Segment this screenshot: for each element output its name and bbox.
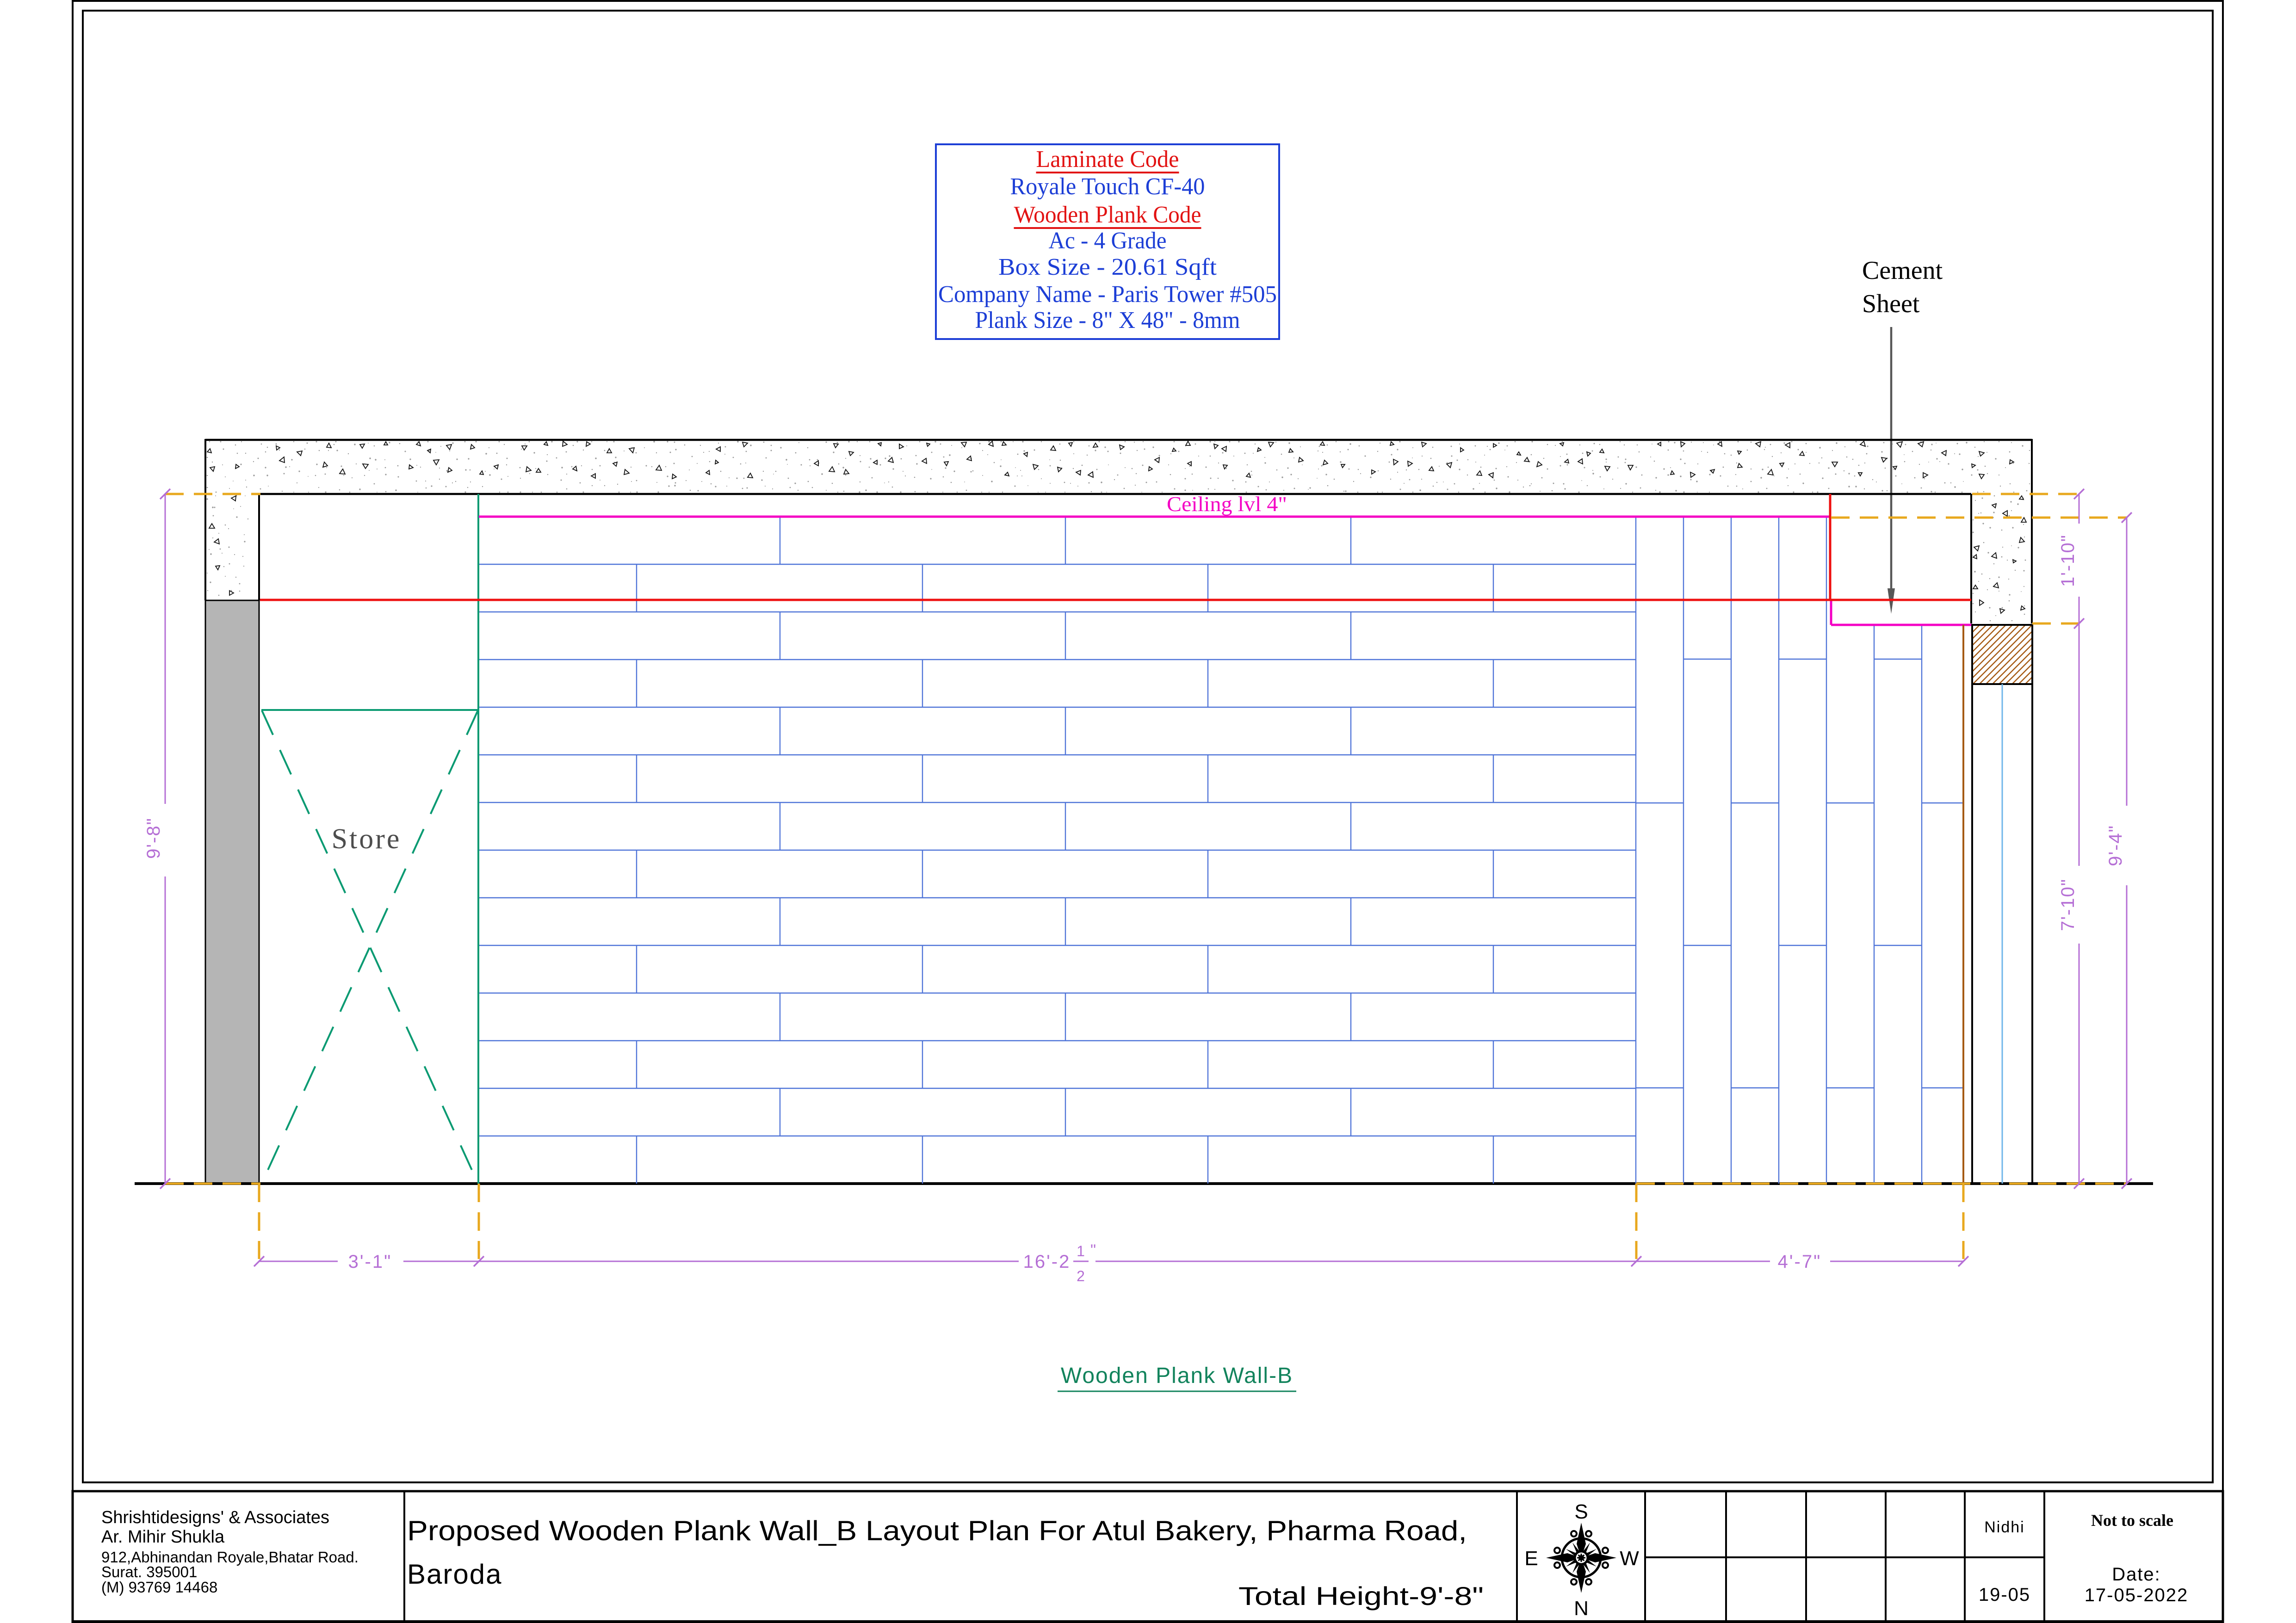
svg-text:Wooden Plank Code: Wooden Plank Code <box>1014 202 1201 228</box>
svg-text:1'-10": 1'-10" <box>2058 534 2078 587</box>
svg-text:N: N <box>1574 1597 1589 1620</box>
svg-text:Wooden Plank Wall-B: Wooden Plank Wall-B <box>1061 1364 1293 1388</box>
svg-text:7'-10": 7'-10" <box>2058 878 2078 931</box>
svg-text:Box Size - 20.61 Sqft: Box Size - 20.61 Sqft <box>998 254 1217 280</box>
svg-text:19-05: 19-05 <box>1979 1585 2030 1605</box>
svg-text:S: S <box>1574 1500 1588 1523</box>
svg-text:Store: Store <box>332 823 402 855</box>
svg-text:Ar. Mihir Shukla: Ar. Mihir Shukla <box>101 1527 225 1547</box>
svg-text:(M) 93769 14468: (M) 93769 14468 <box>101 1579 217 1596</box>
svg-text:16'-2: 16'-2 <box>1023 1252 1071 1272</box>
svg-text:9'-8": 9'-8" <box>143 817 164 859</box>
svg-text:Company Name - Paris Tower #50: Company Name - Paris Tower #505 <box>938 281 1277 308</box>
svg-text:Laminate Code: Laminate Code <box>1036 146 1179 173</box>
svg-text:Nidhi: Nidhi <box>1984 1518 2024 1536</box>
svg-text:Proposed Wooden Plank Wall_B L: Proposed Wooden Plank Wall_B Layout Plan… <box>407 1515 1467 1546</box>
svg-text:E: E <box>1524 1547 1538 1570</box>
svg-text:Date:: Date: <box>2112 1564 2161 1585</box>
svg-text:Cement: Cement <box>1862 256 1943 285</box>
svg-text:4'-7": 4'-7" <box>1778 1252 1822 1272</box>
svg-text:Shrishtidesigns' & Associates: Shrishtidesigns' & Associates <box>101 1508 329 1527</box>
svg-text:17-05-2022: 17-05-2022 <box>2085 1585 2189 1605</box>
svg-text:": " <box>1090 1241 1096 1259</box>
svg-text:2: 2 <box>1077 1268 1085 1284</box>
svg-text:Ac - 4 Grade: Ac - 4 Grade <box>1049 228 1167 254</box>
svg-text:Ceiling lvl 4": Ceiling lvl 4" <box>1167 492 1287 516</box>
svg-text:Baroda: Baroda <box>407 1559 502 1590</box>
svg-text:Plank Size - 8" X 48" - 8mm: Plank Size - 8" X 48" - 8mm <box>975 307 1240 333</box>
svg-text:Surat. 395001: Surat. 395001 <box>101 1563 197 1580</box>
svg-text:3'-1": 3'-1" <box>348 1252 392 1272</box>
svg-text:9'-4": 9'-4" <box>2105 825 2126 866</box>
svg-text:Royale Touch CF-40: Royale Touch CF-40 <box>1010 173 1205 200</box>
svg-text:W: W <box>1620 1547 1639 1570</box>
svg-text:Total Height-9'-8": Total Height-9'-8" <box>1238 1581 1484 1611</box>
svg-text:Not to scale: Not to scale <box>2091 1511 2173 1530</box>
svg-text:Sheet: Sheet <box>1862 290 1920 318</box>
svg-text:1: 1 <box>1077 1243 1085 1259</box>
